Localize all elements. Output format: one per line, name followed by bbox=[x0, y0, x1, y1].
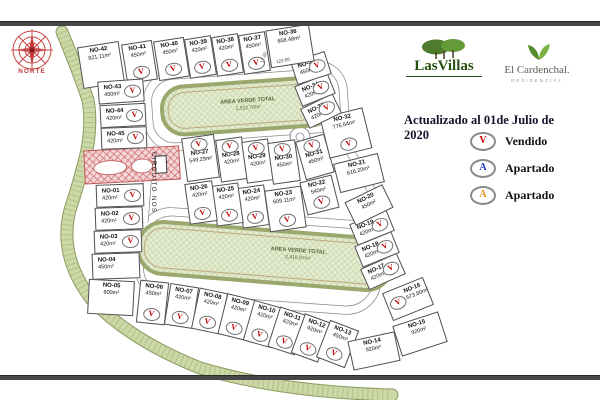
vendido-symbol-icon: V bbox=[470, 132, 496, 151]
lot-NO-40: NO-40 450m² V bbox=[153, 37, 190, 81]
compass-rose-icon bbox=[10, 28, 54, 72]
vendido-marker: V bbox=[220, 208, 239, 223]
legend-label: Apartado bbox=[505, 188, 554, 203]
entrance-island bbox=[93, 159, 128, 176]
vendido-marker: V bbox=[246, 210, 265, 225]
legend-row-apartado-orange: A Apartado bbox=[470, 186, 554, 205]
vendido-marker: V bbox=[197, 314, 216, 330]
legend-label: Vendido bbox=[505, 134, 547, 149]
vendido-marker: V bbox=[170, 310, 189, 325]
gatehouse-box bbox=[155, 155, 168, 174]
lasvillas-tree-icon bbox=[416, 38, 472, 60]
cardenchal-logo-subtext: RESIDENCIAL bbox=[494, 78, 580, 83]
lot-NO-26: NO-26 420m² V bbox=[184, 180, 217, 224]
vendido-marker: V bbox=[297, 340, 317, 358]
vendido-marker: V bbox=[274, 333, 294, 351]
lot-NO-45: NO-45 420m² V bbox=[101, 126, 148, 150]
scan-top-edge bbox=[0, 21, 600, 26]
lot-NO-27: NO-27 549.29m² V bbox=[181, 134, 220, 182]
legend-row-apartado-blue: A Apartado bbox=[470, 159, 554, 178]
legend-label: Apartado bbox=[505, 161, 554, 176]
lot-area: 600m² bbox=[89, 289, 133, 298]
lasvillas-logo-text: LasVillas bbox=[406, 58, 482, 77]
scanned-lot-map-page: { "map": { "compass_label": "NORTE", "st… bbox=[0, 0, 600, 400]
legend-row-vendido: V Vendido bbox=[470, 132, 554, 151]
lot-area: 450m² bbox=[140, 290, 168, 300]
vendido-marker: V bbox=[193, 206, 212, 221]
street-name-label: CIRCUITO NOS bbox=[150, 152, 156, 214]
lot-NO-03: NO-03 420m² V bbox=[94, 229, 143, 254]
vendido-marker: V bbox=[142, 307, 160, 322]
cardenchal-leaf-icon bbox=[526, 42, 552, 62]
vendido-marker: V bbox=[249, 326, 269, 343]
lot-NO-02: NO-02 420m² V bbox=[95, 206, 144, 231]
entrance-hatched-area bbox=[83, 146, 181, 185]
cardenchal-logo-text: El Cardenchal. bbox=[494, 64, 580, 76]
vendido-marker: V bbox=[220, 58, 239, 73]
lot-NO-41: NO-41 450m² V bbox=[121, 40, 158, 84]
vendido-marker: V bbox=[311, 194, 331, 211]
vendido-marker: V bbox=[164, 62, 183, 77]
lot-NO-44: NO-44 420m² V bbox=[99, 103, 146, 128]
lot-NO-05: NO-05 600m² bbox=[87, 279, 135, 316]
lot-area: 450m² bbox=[98, 263, 139, 271]
compass-norte-label: NORTE bbox=[8, 68, 56, 75]
apartado-blue-symbol-icon: A bbox=[470, 159, 496, 178]
legend: V Vendido A Apartado A Apartado bbox=[470, 132, 554, 213]
lot-NO-01: NO-01 420m² V bbox=[96, 183, 145, 208]
vendido-marker: V bbox=[323, 345, 344, 363]
vendido-marker: V bbox=[193, 60, 212, 75]
vendido-marker: V bbox=[224, 320, 244, 337]
apartado-orange-symbol-icon: A bbox=[470, 186, 496, 205]
lot-NO-43: NO-43 450m² V bbox=[97, 78, 144, 104]
vendido-marker: V bbox=[278, 213, 297, 228]
lot-NO-23: NO-23 609.11m² V bbox=[264, 186, 306, 233]
scan-bottom-edge bbox=[0, 375, 600, 380]
lot-NO-04: NO-04 450m² bbox=[92, 252, 141, 280]
vendido-marker: V bbox=[339, 136, 359, 153]
